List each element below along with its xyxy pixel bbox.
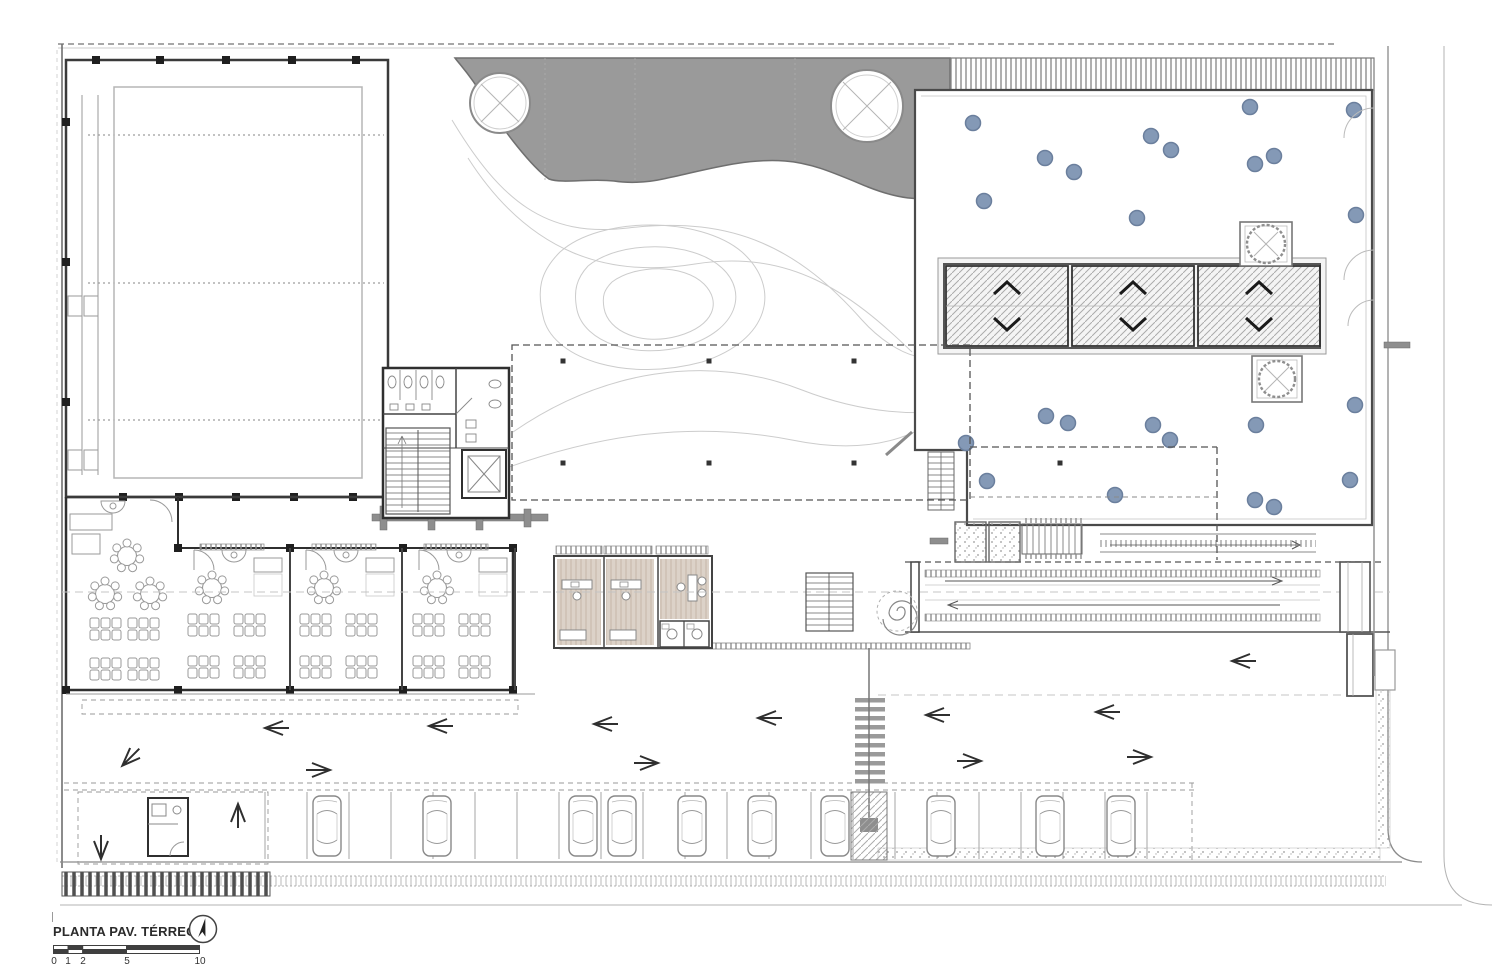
courtyard-dot — [1163, 433, 1178, 448]
window-sill-hatch — [200, 544, 488, 550]
guard-house — [78, 792, 268, 864]
scale-labels: 0 1 2 5 10 — [53, 956, 213, 968]
courtyard-dot — [1349, 208, 1364, 223]
service-core — [383, 368, 509, 518]
traffic-arrow-left — [429, 719, 453, 733]
admin-offices — [554, 546, 712, 648]
courtyard-dot — [1267, 500, 1282, 515]
traffic-arrow-right — [306, 763, 330, 777]
patio-column — [852, 359, 857, 364]
courtyard-dot — [977, 194, 992, 209]
entry-fence-hatch — [62, 872, 270, 896]
entry-vestibule — [1347, 634, 1373, 696]
elevator — [462, 450, 506, 498]
skylight-panels — [938, 258, 1326, 354]
floor-plan-drawing — [0, 0, 1500, 970]
parked-cars — [313, 796, 1135, 856]
parked-car — [748, 796, 776, 856]
courtyard-dot — [1248, 157, 1263, 172]
patio-column — [1058, 461, 1063, 466]
courtyard-dot — [1146, 418, 1161, 433]
scale-label: 0 — [51, 956, 57, 967]
west-stair — [806, 573, 853, 631]
patio-column — [561, 359, 566, 364]
courtyard-dot — [1249, 418, 1264, 433]
courtyard-dot — [1144, 129, 1159, 144]
ramp-arrows — [945, 577, 1282, 609]
classroom-block — [62, 497, 535, 714]
parked-car — [821, 796, 849, 856]
traffic-arrow-up — [231, 804, 245, 828]
courtyard-dot — [1164, 143, 1179, 158]
parking-area — [64, 648, 1256, 864]
north-arrow-icon — [186, 912, 220, 951]
courtyard-dot — [1067, 165, 1082, 180]
parked-car — [927, 796, 955, 856]
courtyard-dot — [1039, 409, 1054, 424]
plan-title: PLANTA PAV. TÉRREO — [53, 924, 196, 939]
courtyard-dot — [959, 436, 974, 451]
traffic-arrow-left — [265, 721, 289, 735]
scale-label: 10 — [194, 956, 205, 967]
classroom-module — [413, 548, 515, 690]
courtyard-dot — [1108, 488, 1123, 503]
planter-box-tree — [1252, 356, 1302, 402]
patio-column — [561, 461, 566, 466]
courtyard-dot — [1130, 211, 1145, 226]
walkway-canopy-dashed — [82, 700, 518, 714]
courtyard-dot — [1038, 151, 1053, 166]
planter-box-tree — [1240, 222, 1292, 266]
hatched-stall — [851, 792, 887, 860]
courtyard-edge-ramp — [1100, 534, 1316, 552]
gymnasium — [62, 56, 388, 501]
traffic-arrow-right — [1127, 750, 1151, 764]
traffic-arrow-left — [926, 708, 950, 722]
traffic-arrow-right — [957, 754, 981, 768]
classroom-module — [300, 548, 402, 690]
skylight-circle — [470, 73, 530, 133]
patio-column — [707, 461, 712, 466]
garden-stair — [1022, 524, 1082, 554]
deck-hatch-band — [950, 58, 1374, 90]
parked-car — [313, 796, 341, 856]
courtyard-dot — [1243, 100, 1258, 115]
office-toilets — [660, 621, 709, 647]
courtyard-dot — [1248, 493, 1263, 508]
courtyard-building — [886, 58, 1374, 552]
traffic-arrow-down — [94, 835, 108, 859]
canopy-roof — [455, 58, 950, 199]
skylight-circle — [831, 70, 903, 142]
parked-car — [608, 796, 636, 856]
title-tick — [52, 912, 53, 922]
traffic-arrow-down-left — [117, 744, 144, 771]
ramp-link — [886, 432, 912, 455]
scale-label: 1 — [65, 956, 71, 967]
parked-car — [1036, 796, 1064, 856]
patio-column — [707, 359, 712, 364]
classroom-module — [188, 548, 290, 690]
traffic-arrow-left — [1096, 705, 1120, 719]
parked-car — [678, 796, 706, 856]
courtyard-dot — [1061, 416, 1076, 431]
floor-plan-sheet: PLANTA PAV. TÉRREO 0 1 2 5 10 — [0, 0, 1500, 970]
courtyard-dot — [1267, 149, 1282, 164]
traffic-arrow-left — [594, 717, 618, 731]
dining-room — [70, 500, 172, 680]
scale-label: 2 — [80, 956, 86, 967]
courtyard-dot — [1343, 473, 1358, 488]
scale-label: 5 — [124, 956, 130, 967]
parked-car — [423, 796, 451, 856]
patio-column — [852, 461, 857, 466]
parked-car — [1107, 796, 1135, 856]
planter — [989, 522, 1020, 562]
title-block: PLANTA PAV. TÉRREO 0 1 2 5 10 — [38, 918, 268, 966]
courtyard-dot — [1348, 398, 1363, 413]
courtyard-dot — [966, 116, 981, 131]
traffic-arrow-right — [634, 756, 658, 770]
courtyard-dot — [980, 474, 995, 489]
parked-car — [569, 796, 597, 856]
traffic-arrow-left — [758, 711, 782, 725]
planter — [955, 522, 986, 562]
traffic-arrow-left — [1232, 654, 1256, 668]
